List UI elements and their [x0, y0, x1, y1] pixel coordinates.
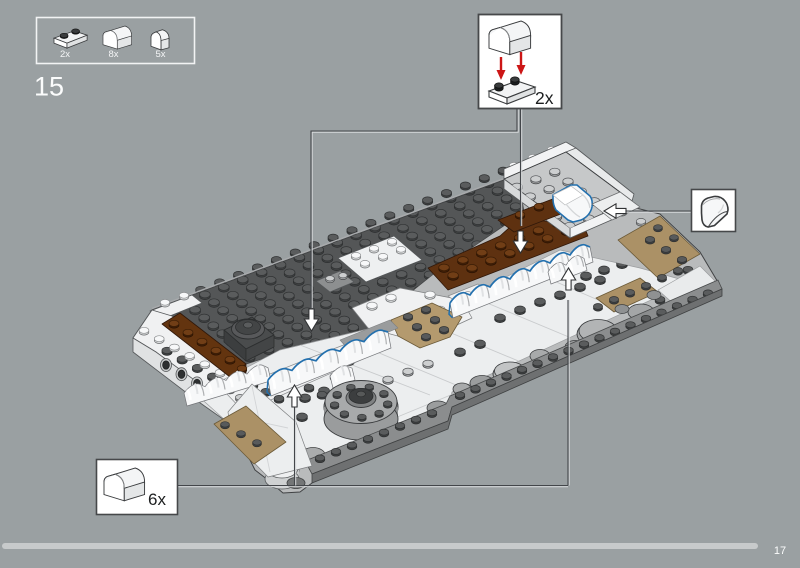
- svg-text:2x: 2x: [60, 49, 70, 60]
- svg-text:2x: 2x: [535, 88, 554, 108]
- svg-text:15: 15: [34, 72, 64, 102]
- svg-text:17: 17: [774, 545, 786, 557]
- svg-text:8x: 8x: [108, 49, 118, 60]
- svg-text:6x: 6x: [148, 490, 166, 509]
- svg-text:5x: 5x: [155, 49, 165, 60]
